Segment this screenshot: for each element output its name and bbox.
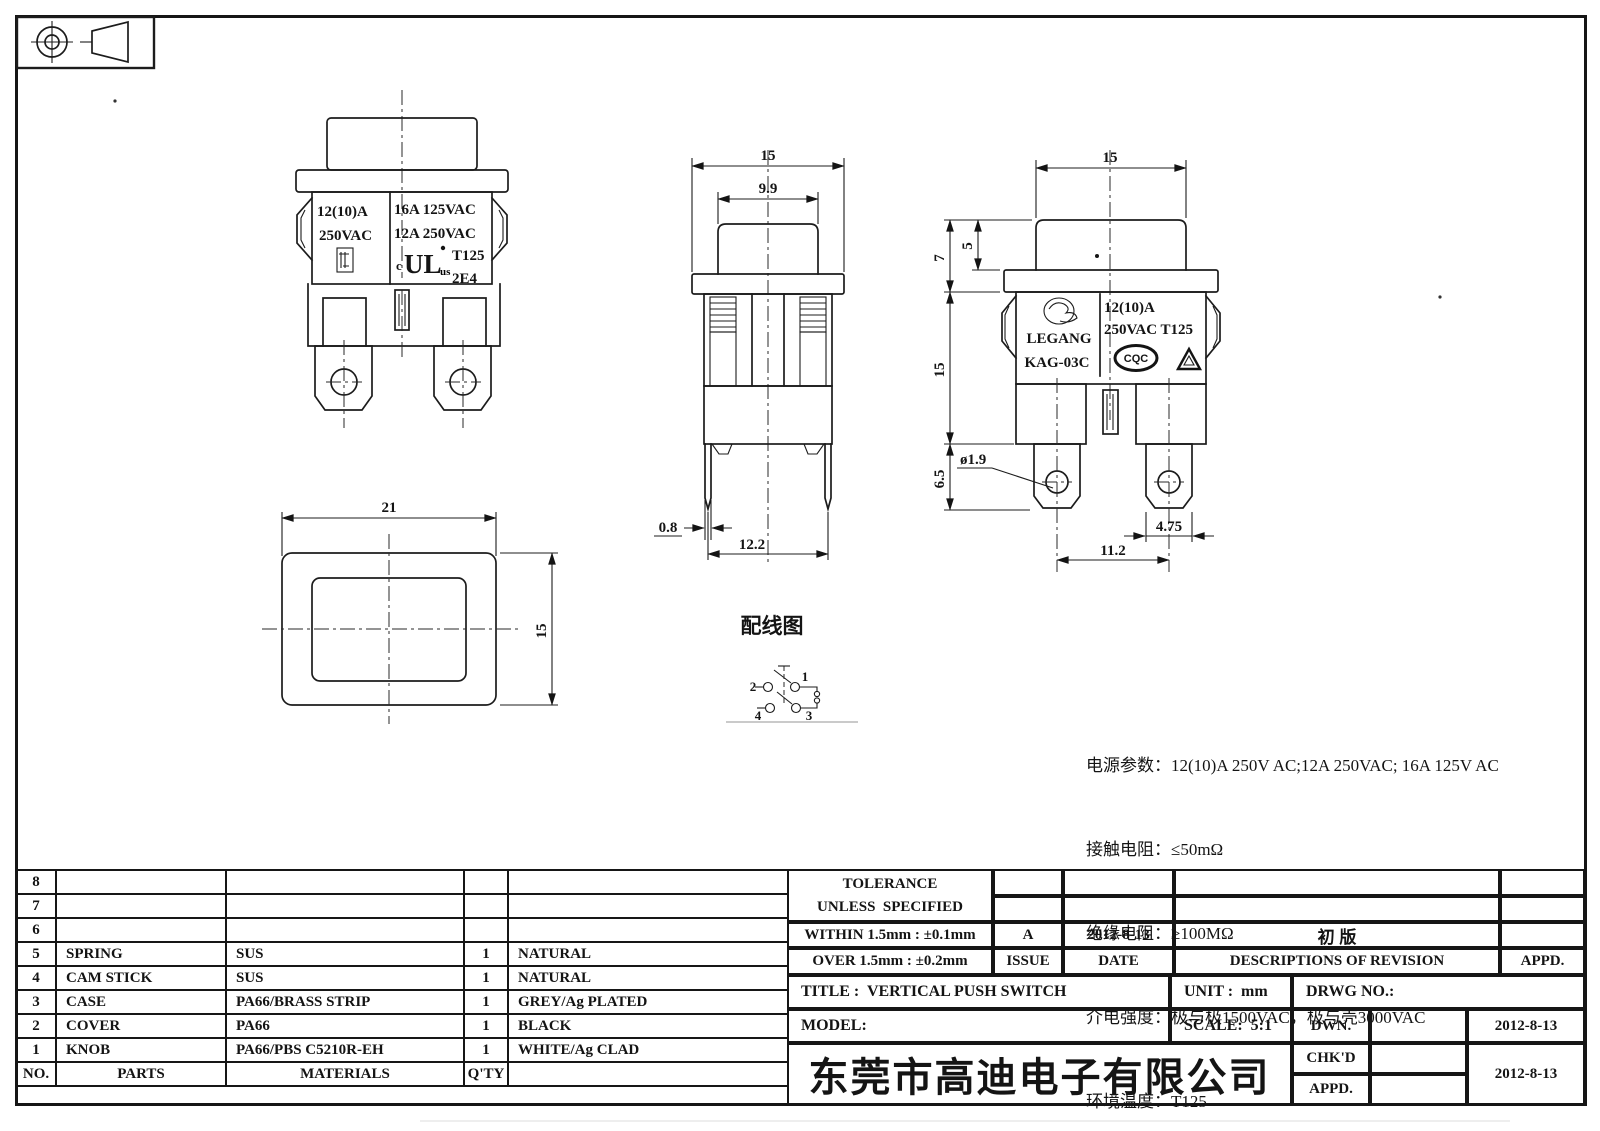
legang-logo-icon	[1044, 298, 1077, 324]
revision-issue-value: A	[993, 922, 1063, 948]
revision-appd-value	[1500, 922, 1585, 948]
part-no: 3	[16, 990, 56, 1014]
part-name: CASE	[56, 990, 226, 1014]
wiring-pin-3: 3	[806, 708, 813, 723]
right-dim-terminal: 6.5	[932, 470, 948, 489]
part-name: CAM STICK	[56, 966, 226, 990]
drawing-sheet: 12(10)A 250VAC 16A 125VAC 12A 250VAC c U…	[0, 0, 1600, 1131]
front-electrical-life: 2E4	[452, 271, 478, 287]
appd-label: APPD.	[1500, 948, 1585, 975]
svg-text:us: us	[440, 266, 451, 278]
table-row: 5SPRINGSUS1NATURAL	[16, 942, 788, 966]
part-name	[56, 870, 226, 894]
tolerance-within: WITHIN 1.5mm : ±0.1mm	[787, 922, 993, 948]
part-qty	[464, 918, 508, 942]
front-rating-right-2: 12A 250VAC	[394, 226, 476, 242]
part-name	[56, 918, 226, 942]
header-no: NO.	[16, 1062, 56, 1086]
ul-listed-icon: c UL us	[396, 246, 451, 279]
right-rating-2: 250VAC T125	[1104, 322, 1193, 338]
cqc-mark-icon: CQC	[1115, 346, 1157, 371]
revision-empty-cell	[993, 869, 1063, 896]
top-dim-width: 21	[382, 500, 397, 516]
right-dim-h5: 5	[960, 242, 976, 250]
part-remark: BLACK	[508, 1014, 788, 1038]
chkd-signature	[1370, 1043, 1467, 1074]
header-remark	[508, 1062, 788, 1086]
tolerance-cell: TOLERANCE UNLESS SPECIFIED	[787, 869, 993, 922]
part-no: 6	[16, 918, 56, 942]
part-remark: GREY/Ag PLATED	[508, 990, 788, 1014]
wiring-pin-2: 2	[750, 679, 757, 694]
appd-signature	[1370, 1074, 1467, 1105]
part-material	[226, 894, 464, 918]
svg-text:CQC: CQC	[1124, 353, 1149, 365]
dwn-date: 2012-8-13	[1467, 1009, 1585, 1043]
right-brand: LEGANG	[1026, 331, 1091, 347]
revision-description-value: 初 版	[1174, 922, 1500, 948]
drawing-title: TITLE : VERTICAL PUSH SWITCH	[787, 975, 1170, 1009]
part-qty: 1	[464, 942, 508, 966]
dwn-signature	[1370, 1009, 1467, 1043]
front-temp-rating: T125	[452, 248, 485, 264]
svg-text:UL: UL	[404, 249, 442, 279]
table-row: 4CAM STICKSUS1NATURAL	[16, 966, 788, 990]
part-no: 4	[16, 966, 56, 990]
wiring-pin-1: 1	[802, 669, 809, 684]
part-remark	[508, 894, 788, 918]
part-no: 2	[16, 1014, 56, 1038]
revision-date-value: 2012-8-13	[1063, 922, 1174, 948]
part-no: 1	[16, 1038, 56, 1062]
tolerance-over: OVER 1.5mm : ±0.2mm	[787, 948, 993, 975]
right-model: KAG-03C	[1025, 355, 1090, 371]
descriptions-label: DESCRIPTIONS OF REVISION	[1174, 948, 1500, 975]
scan-dot	[1438, 295, 1441, 298]
part-material	[226, 918, 464, 942]
table-row: 6	[16, 918, 788, 942]
header-materials: MATERIALS	[226, 1062, 464, 1086]
wiring-diagram: 配线图 2 1 4 3	[726, 614, 858, 723]
tolerance-line1: TOLERANCE	[843, 873, 938, 896]
table-row: 7	[16, 894, 788, 918]
right-dim-term-width: 4.75	[1156, 519, 1182, 535]
part-remark	[508, 918, 788, 942]
part-material	[226, 870, 464, 894]
cert-mark-icon	[337, 248, 353, 272]
unit-cell: UNIT : mm	[1170, 975, 1292, 1009]
model-cell: MODEL:	[787, 1009, 1170, 1043]
header-parts: PARTS	[56, 1062, 226, 1086]
chkd-date: 2012-8-13	[1467, 1043, 1585, 1105]
right-dim-hole: ø1.9	[960, 452, 986, 468]
tolerance-line2: UNLESS SPECIFIED	[817, 896, 963, 919]
scan-dot	[113, 99, 116, 102]
top-dim-height: 15	[534, 624, 550, 639]
part-name: KNOB	[56, 1038, 226, 1062]
part-qty: 1	[464, 966, 508, 990]
part-material: PA66/BRASS STRIP	[226, 990, 464, 1014]
revision-empty-cell	[1063, 869, 1174, 896]
spec-line: 电源参数：12(10)A 250V AC;12A 250VAC; 16A 125…	[1086, 752, 1499, 780]
side-dim-knob: 9.9	[759, 181, 778, 197]
chkd-label: CHK'D	[1292, 1043, 1370, 1074]
issue-label: ISSUE	[993, 948, 1063, 975]
part-qty: 1	[464, 1014, 508, 1038]
side-dim-width: 15	[761, 148, 776, 164]
part-remark: NATURAL	[508, 966, 788, 990]
wiring-title: 配线图	[741, 614, 804, 638]
part-remark: WHITE/Ag CLAD	[508, 1038, 788, 1062]
appd2-label: APPD.	[1292, 1074, 1370, 1105]
table-row: 8	[16, 870, 788, 894]
revision-empty-cell	[1500, 869, 1585, 896]
revision-empty-cell	[1500, 896, 1585, 922]
right-dim-knob-width: 15	[1103, 150, 1118, 166]
part-qty	[464, 870, 508, 894]
part-material: PA66	[226, 1014, 464, 1038]
part-no: 8	[16, 870, 56, 894]
front-view: 12(10)A 250VAC 16A 125VAC 12A 250VAC c U…	[296, 90, 508, 428]
revision-empty-cell	[1174, 869, 1500, 896]
part-name: COVER	[56, 1014, 226, 1038]
part-no: 7	[16, 894, 56, 918]
part-remark	[508, 870, 788, 894]
side-dim-pin: 0.8	[659, 520, 678, 536]
revision-empty-cell	[993, 896, 1063, 922]
table-row: 2COVERPA661BLACK	[16, 1014, 788, 1038]
header-qty: Q'TY	[464, 1062, 508, 1086]
parts-table: 8 7 6 5SPRINGSUS1NATURAL 4CAM STICKSUS1N…	[15, 869, 789, 1087]
part-material: SUS	[226, 942, 464, 966]
side-dim-span: 12.2	[739, 537, 765, 553]
front-rating-right-1: 16A 125VAC	[394, 202, 476, 218]
triangle-mark-icon	[1178, 349, 1200, 369]
right-dim-pitch: 11.2	[1100, 543, 1125, 559]
part-qty	[464, 894, 508, 918]
table-row: 3CASEPA66/BRASS STRIP1GREY/Ag PLATED	[16, 990, 788, 1014]
part-name	[56, 894, 226, 918]
revision-empty-cell	[1063, 896, 1174, 922]
table-row: 1KNOBPA66/PBS C5210R-EH1WHITE/Ag CLAD	[16, 1038, 788, 1062]
svg-text:c: c	[396, 258, 402, 273]
front-rating-left-2: 250VAC	[319, 228, 372, 244]
part-name: SPRING	[56, 942, 226, 966]
part-remark: NATURAL	[508, 942, 788, 966]
part-no: 5	[16, 942, 56, 966]
side-view: 15 9.9	[654, 148, 844, 562]
projection-symbol-icon	[17, 17, 154, 68]
drwg-no-cell: DRWG NO.:	[1292, 975, 1585, 1009]
right-dim-body: 15	[932, 363, 948, 378]
date-label: DATE	[1063, 948, 1174, 975]
part-material: PA66/PBS C5210R-EH	[226, 1038, 464, 1062]
table-header-row: NO.PARTSMATERIALSQ'TY	[16, 1062, 788, 1086]
dwn-label: DWN.	[1292, 1009, 1370, 1043]
part-qty: 1	[464, 1038, 508, 1062]
part-qty: 1	[464, 990, 508, 1014]
front-rating-left-1: 12(10)A	[317, 204, 368, 220]
scale-cell: SCALE: 5:1	[1170, 1009, 1292, 1043]
right-dim-h7: 7	[932, 254, 948, 262]
spec-line: 接触电阻：≤50mΩ	[1086, 836, 1499, 864]
right-view: 15 LEGANG KAG-03C 12(10)A 250VAC T125 CQ…	[932, 150, 1220, 572]
top-view: 21 15	[262, 500, 558, 724]
part-material: SUS	[226, 966, 464, 990]
right-rating-1: 12(10)A	[1104, 300, 1155, 316]
wiring-pin-4: 4	[755, 708, 762, 723]
company-name: 东莞市高迪电子有限公司	[787, 1043, 1292, 1105]
revision-empty-cell	[1174, 896, 1500, 922]
